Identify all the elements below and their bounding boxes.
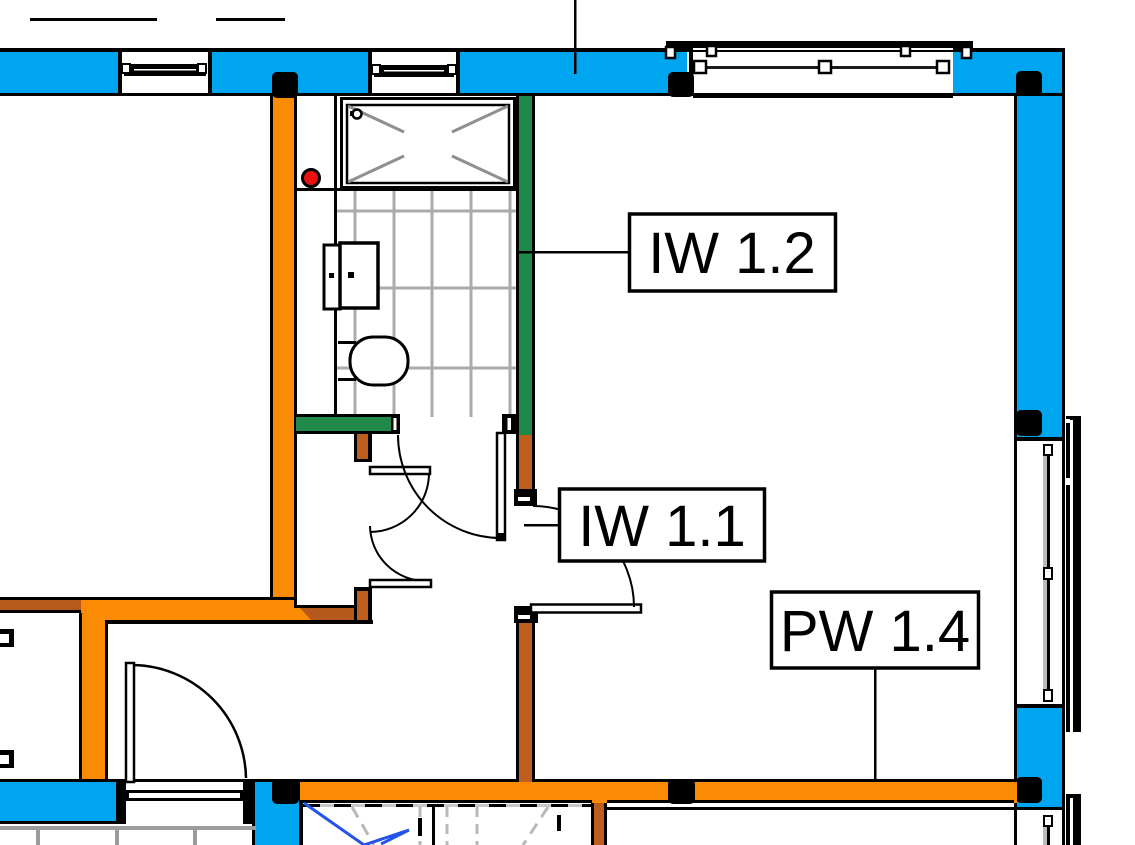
svg-text:PW 1.4: PW 1.4 bbox=[780, 599, 970, 664]
svg-text:IW 1.1: IW 1.1 bbox=[578, 494, 746, 559]
svg-text:IW 1.2: IW 1.2 bbox=[648, 221, 816, 286]
